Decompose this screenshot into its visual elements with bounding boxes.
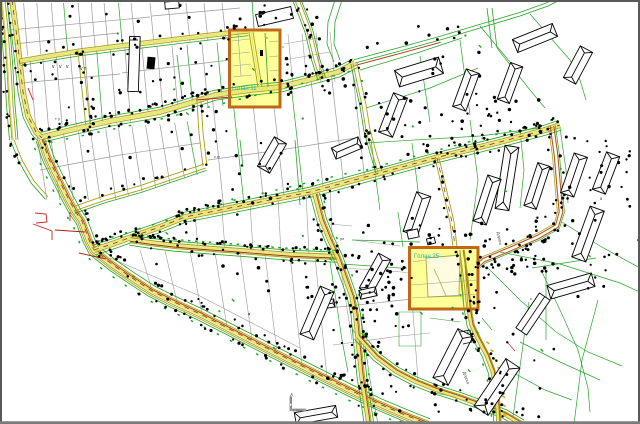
svg-text:v: v [560,166,562,171]
svg-text:c ст: c ст [214,155,220,159]
svg-text:Гплан 25: Гплан 25 [414,254,440,260]
svg-text:Гплан 11: Гплан 11 [232,86,257,92]
svg-text:v т: v т [80,66,87,72]
svg-text:1:2000: 1:2000 [293,408,303,412]
svg-text:v: v [266,35,268,40]
svg-text:v: v [282,44,284,49]
svg-text:v: v [530,296,532,301]
svg-text:ул: ул [340,236,345,241]
svg-text:т у: т у [55,116,60,121]
